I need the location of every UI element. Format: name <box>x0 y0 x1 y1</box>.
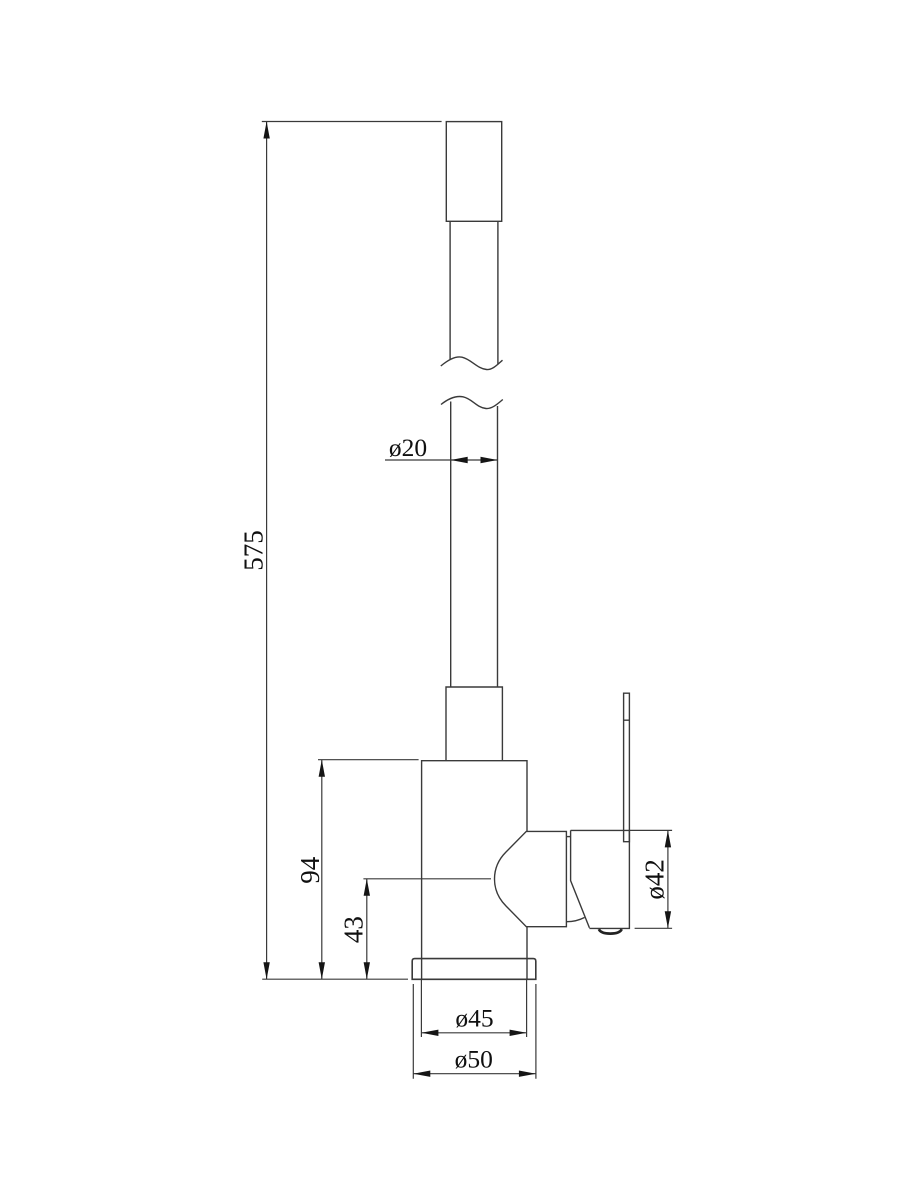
svg-text:ø45: ø45 <box>455 1004 493 1033</box>
svg-text:94: 94 <box>295 856 325 884</box>
svg-text:ø20: ø20 <box>389 433 427 462</box>
svg-text:43: 43 <box>339 916 369 943</box>
svg-text:ø42: ø42 <box>639 859 669 900</box>
svg-text:ø50: ø50 <box>455 1044 493 1073</box>
svg-text:575: 575 <box>238 530 268 571</box>
